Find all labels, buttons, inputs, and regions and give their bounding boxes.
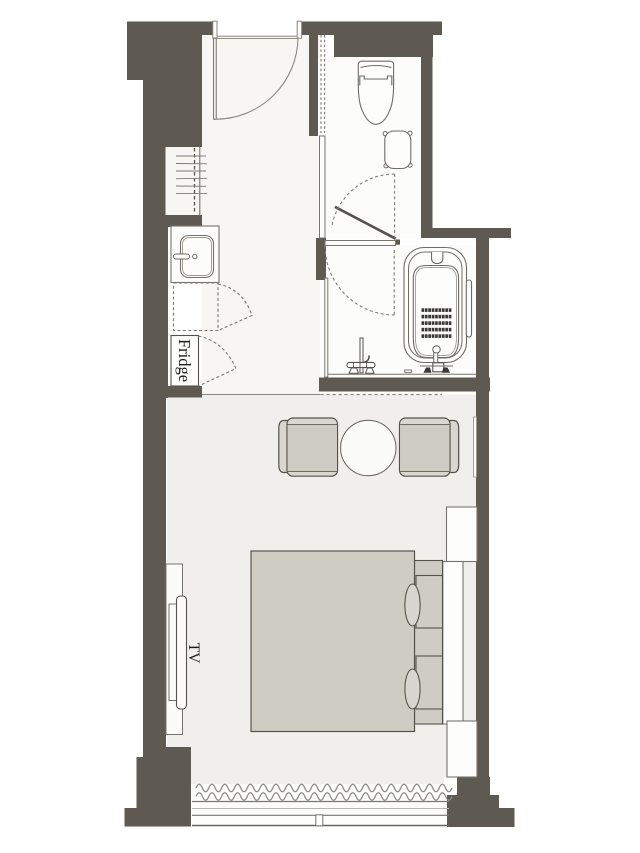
svg-text:Fridge: Fridge	[175, 339, 194, 382]
svg-text:TV: TV	[185, 643, 202, 664]
